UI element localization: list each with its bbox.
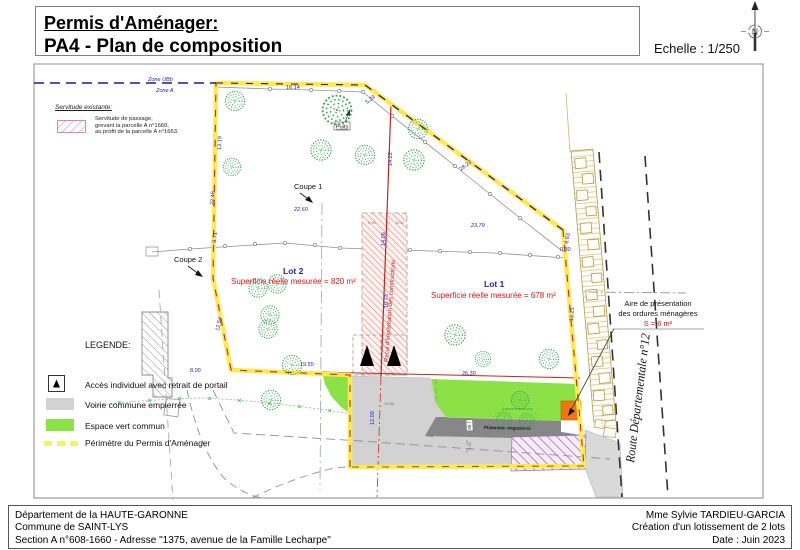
svg-text:9.71: 9.71 xyxy=(212,232,219,243)
svg-text:10.73: 10.73 xyxy=(384,294,390,308)
svg-text:3.00: 3.00 xyxy=(388,371,397,376)
svg-text:3.00: 3.00 xyxy=(357,371,366,376)
svg-text:Puits: Puits xyxy=(336,125,348,131)
svg-text:Lot 2: Lot 2 xyxy=(283,266,304,276)
svg-text:Zone A: Zone A xyxy=(155,88,174,94)
svg-text:Lot 1: Lot 1 xyxy=(484,279,505,289)
svg-text:5.00: 5.00 xyxy=(396,220,405,225)
svg-text:1.50: 1.50 xyxy=(467,421,472,431)
svg-text:22.46: 22.46 xyxy=(210,191,216,205)
svg-text:16.14: 16.14 xyxy=(286,85,300,91)
svg-text:16.21: 16.21 xyxy=(569,307,576,321)
svg-text:13.19: 13.19 xyxy=(217,136,223,150)
svg-text:Superficie réelle mesurée = 82: Superficie réelle mesurée = 820 m² xyxy=(231,277,356,286)
svg-text:4.00: 4.00 xyxy=(467,441,472,450)
svg-text:Coupe 1: Coupe 1 xyxy=(294,182,322,191)
svg-text:19.88: 19.88 xyxy=(384,401,395,406)
svg-text:Zone UBb: Zone UBb xyxy=(147,77,173,83)
svg-text:19.55: 19.55 xyxy=(300,362,314,368)
svg-text:Coupe 2: Coupe 2 xyxy=(174,255,202,264)
svg-text:14.22: 14.22 xyxy=(388,152,394,166)
svg-text:14.06: 14.06 xyxy=(381,232,387,246)
svg-text:12.00: 12.00 xyxy=(370,411,376,425)
svg-text:0.90: 0.90 xyxy=(368,220,377,225)
svg-text:8.00: 8.00 xyxy=(190,368,201,374)
svg-text:Superficie réelle mesurée = 67: Superficie réelle mesurée = 678 m² xyxy=(431,291,556,300)
svg-text:0.30: 0.30 xyxy=(560,247,571,253)
svg-text:Arbres conservés: Arbres conservés xyxy=(502,406,533,411)
svg-text:26.30: 26.30 xyxy=(462,371,476,377)
svg-text:23.79: 23.79 xyxy=(470,223,485,229)
svg-text:22.60: 22.60 xyxy=(293,207,309,213)
